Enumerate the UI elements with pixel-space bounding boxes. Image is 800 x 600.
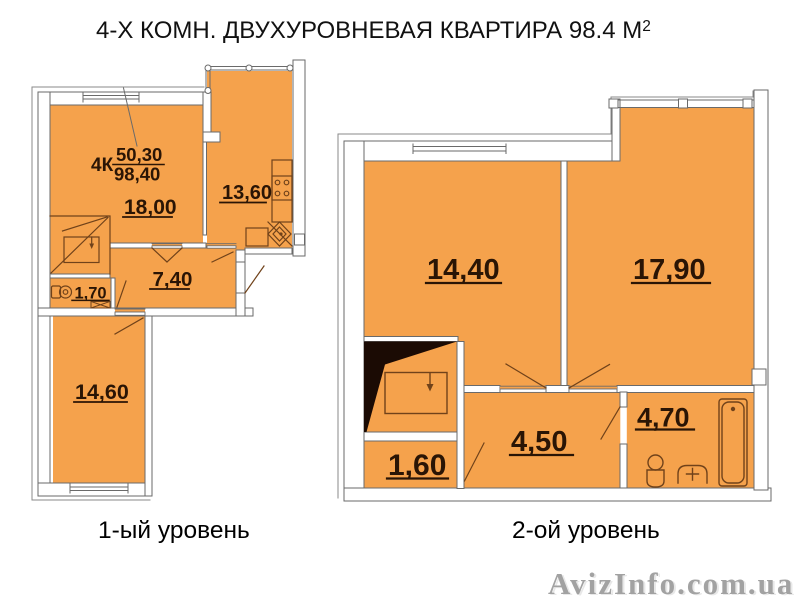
svg-text:4,50: 4,50 xyxy=(511,426,567,458)
svg-text:14,60: 14,60 xyxy=(75,380,129,404)
svg-text:98,40: 98,40 xyxy=(114,164,160,185)
svg-text:1,60: 1,60 xyxy=(388,449,446,482)
svg-text:18,00: 18,00 xyxy=(124,196,177,219)
svg-text:4К: 4К xyxy=(91,155,114,176)
svg-text:AvizInfo.com.ua: AvizInfo.com.ua xyxy=(548,566,794,600)
svg-text:1-ый уровень: 1-ый уровень xyxy=(98,517,250,544)
svg-text:50,30: 50,30 xyxy=(116,144,162,165)
svg-text:4-Х КОМН. ДВУХУРОВНЕВАЯ КВАРТИ: 4-Х КОМН. ДВУХУРОВНЕВАЯ КВАРТИРА 98.4 М2 xyxy=(96,17,651,44)
svg-text:7,40: 7,40 xyxy=(153,268,193,291)
svg-text:14,40: 14,40 xyxy=(427,254,500,286)
svg-text:13,60: 13,60 xyxy=(222,182,272,204)
svg-text:17,90: 17,90 xyxy=(633,254,706,286)
svg-text:2-ой уровень: 2-ой уровень xyxy=(512,517,660,544)
svg-text:4,70: 4,70 xyxy=(637,403,690,433)
